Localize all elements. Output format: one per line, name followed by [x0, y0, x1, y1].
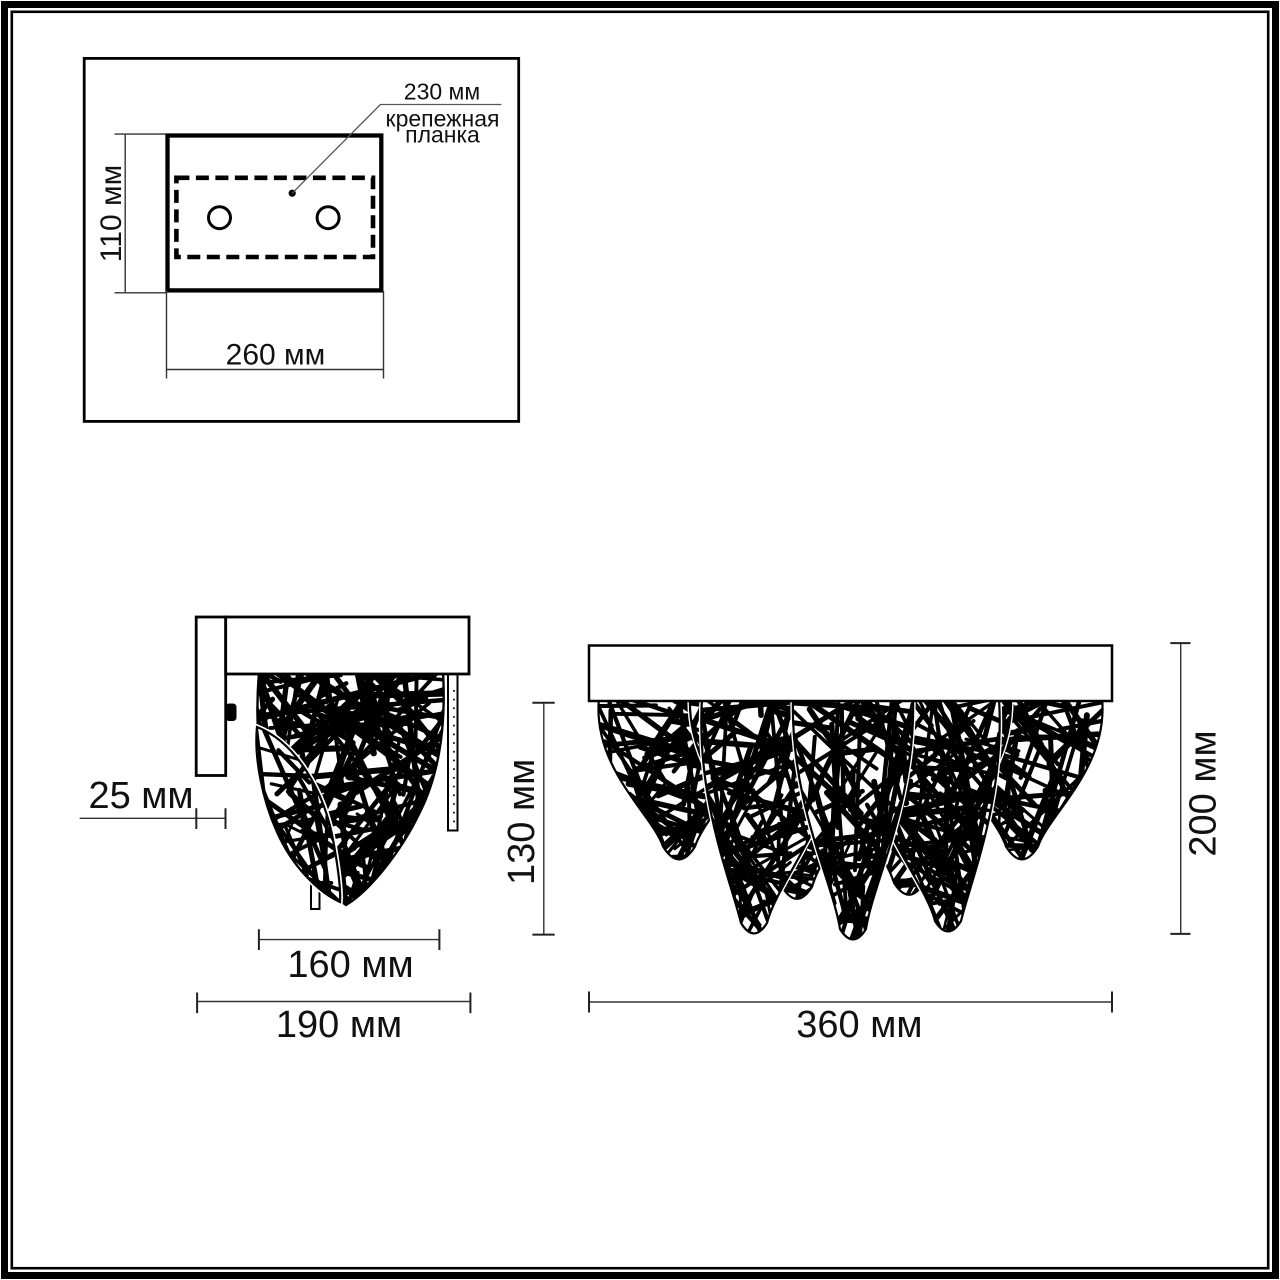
svg-text:230 мм: 230 мм [404, 78, 480, 104]
svg-text:130 мм: 130 мм [501, 759, 543, 885]
svg-text:110 мм: 110 мм [95, 165, 128, 262]
svg-text:крепежнаяпланка: крепежнаяпланка [386, 106, 500, 148]
svg-text:360 мм: 360 мм [796, 1004, 922, 1046]
svg-text:25 мм: 25 мм [88, 775, 193, 817]
svg-text:160 мм: 160 мм [287, 944, 413, 986]
svg-text:190 мм: 190 мм [276, 1004, 402, 1046]
svg-text:200 мм: 200 мм [1183, 730, 1225, 856]
svg-text:260 мм: 260 мм [226, 339, 326, 372]
